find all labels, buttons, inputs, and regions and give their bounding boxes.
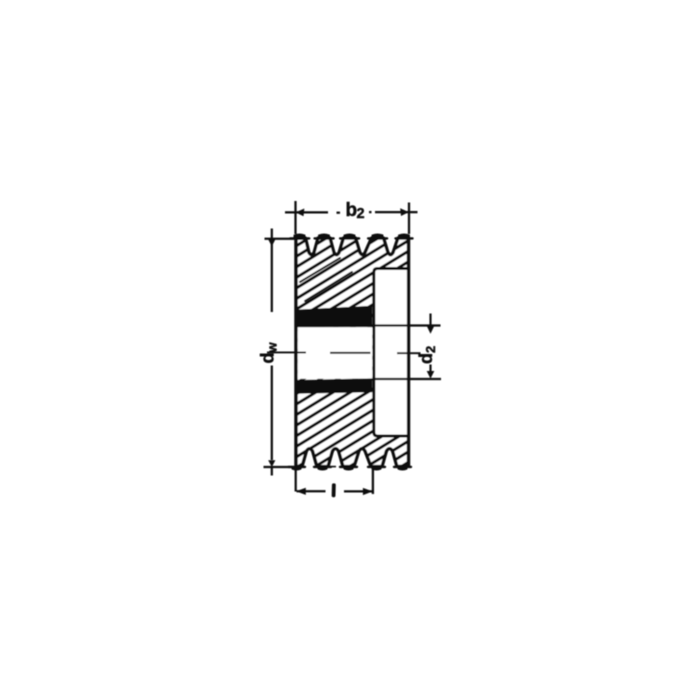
svg-text:2: 2 [357,206,365,222]
svg-text:b: b [346,200,358,221]
